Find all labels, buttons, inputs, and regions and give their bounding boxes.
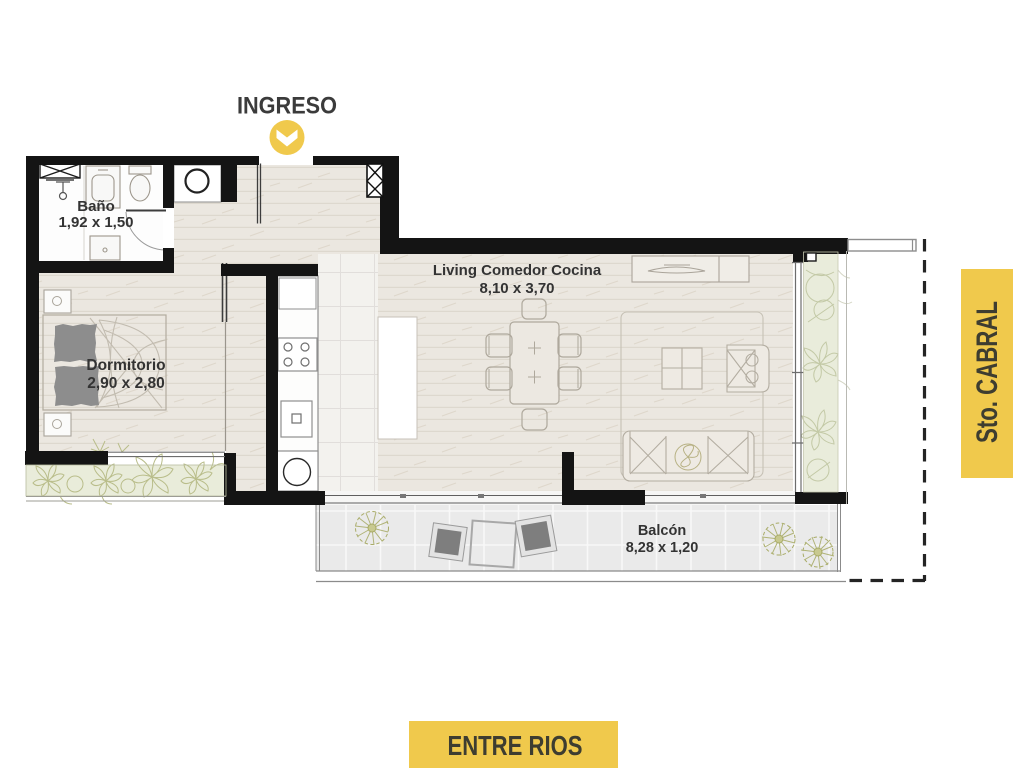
svg-text:8,10 x 3,70: 8,10 x 3,70 [479, 280, 554, 297]
svg-text:8,28 x 1,20: 8,28 x 1,20 [626, 540, 699, 556]
svg-text:ENTRE RIOS: ENTRE RIOS [448, 730, 583, 761]
svg-text:Baño: Baño [77, 198, 115, 215]
svg-text:1,92 x 1,50: 1,92 x 1,50 [58, 214, 133, 231]
svg-text:Balcón: Balcón [638, 523, 686, 539]
svg-text:Living Comedor Cocina: Living Comedor Cocina [433, 262, 602, 279]
svg-text:Dormitorio: Dormitorio [86, 357, 165, 374]
svg-text:Sto. CABRAL: Sto. CABRAL [971, 301, 1004, 443]
svg-text:2,90 x 2,80: 2,90 x 2,80 [87, 375, 165, 392]
svg-text:INGRESO: INGRESO [237, 93, 337, 120]
